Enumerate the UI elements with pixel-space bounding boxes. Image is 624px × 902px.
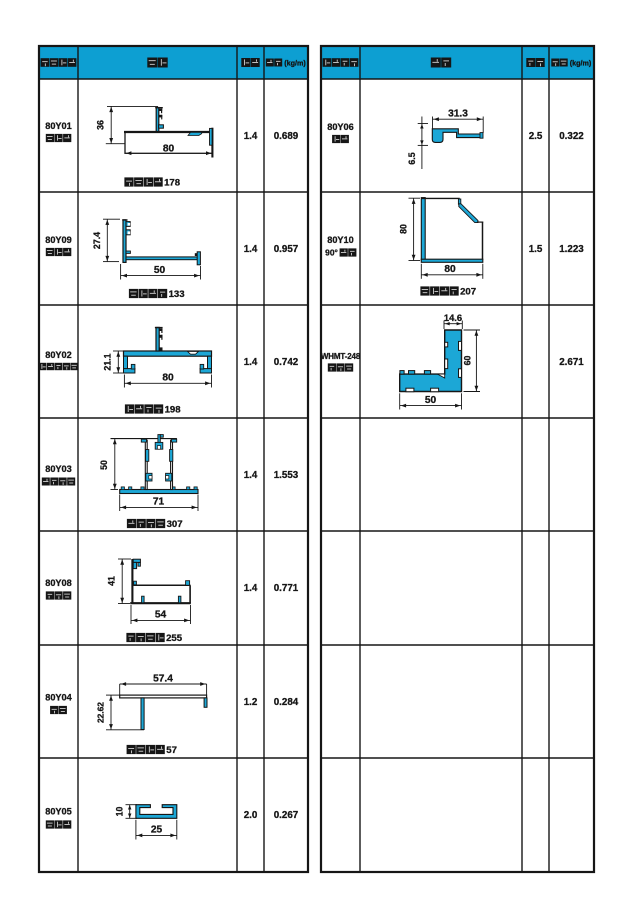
svg-text:80Y02: 80Y02 — [45, 350, 72, 360]
svg-text:1.4: 1.4 — [244, 583, 258, 594]
svg-text:31.3: 31.3 — [448, 109, 468, 120]
svg-text:57.4: 57.4 — [153, 673, 173, 684]
svg-text:57: 57 — [166, 745, 177, 756]
svg-text:80Y08: 80Y08 — [45, 578, 72, 588]
svg-text:(kg/m): (kg/m) — [284, 59, 306, 68]
svg-text:1.5: 1.5 — [529, 244, 543, 255]
svg-text:22.62: 22.62 — [95, 702, 105, 723]
svg-text:0.957: 0.957 — [274, 244, 299, 255]
svg-text:80Y03: 80Y03 — [45, 464, 72, 474]
svg-text:207: 207 — [460, 287, 476, 298]
svg-text:25: 25 — [151, 825, 163, 836]
svg-text:133: 133 — [169, 289, 185, 300]
svg-text:1.4: 1.4 — [244, 244, 258, 255]
svg-text:60: 60 — [462, 356, 472, 366]
svg-text:2.671: 2.671 — [559, 357, 584, 368]
svg-text:178: 178 — [164, 178, 181, 189]
svg-text:80Y01: 80Y01 — [45, 121, 72, 131]
svg-text:80Y10: 80Y10 — [327, 235, 354, 245]
svg-text:1.4: 1.4 — [244, 470, 258, 481]
svg-text:307: 307 — [167, 519, 183, 530]
svg-text:14.6: 14.6 — [444, 312, 462, 323]
svg-text:50: 50 — [154, 265, 166, 276]
svg-text:0.742: 0.742 — [274, 357, 299, 368]
svg-text:80: 80 — [163, 144, 175, 155]
svg-text:1.4: 1.4 — [244, 131, 258, 142]
svg-text:80: 80 — [444, 264, 456, 275]
svg-text:54: 54 — [155, 610, 167, 621]
svg-text:0.689: 0.689 — [274, 131, 299, 142]
svg-text:80: 80 — [162, 373, 174, 384]
svg-text:36: 36 — [96, 120, 106, 130]
svg-text:21.1: 21.1 — [102, 353, 112, 370]
svg-text:0.322: 0.322 — [559, 131, 584, 142]
svg-text:(kg/m): (kg/m) — [570, 59, 592, 68]
svg-text:2.0: 2.0 — [244, 810, 258, 821]
svg-text:27.4: 27.4 — [92, 232, 102, 249]
svg-text:1.553: 1.553 — [274, 470, 299, 481]
svg-text:41: 41 — [107, 576, 117, 586]
svg-text:1.4: 1.4 — [244, 357, 258, 368]
svg-text:80Y06: 80Y06 — [327, 122, 354, 132]
svg-text:90°: 90° — [325, 248, 338, 258]
svg-text:10: 10 — [114, 807, 124, 817]
svg-text:71: 71 — [153, 497, 165, 508]
svg-text:6.5: 6.5 — [407, 152, 417, 164]
svg-text:1.223: 1.223 — [559, 244, 584, 255]
svg-text:80Y05: 80Y05 — [45, 807, 72, 817]
svg-text:80Y09: 80Y09 — [45, 235, 72, 245]
svg-text:2.5: 2.5 — [529, 131, 543, 142]
svg-text:80Y04: 80Y04 — [45, 693, 72, 703]
svg-text:198: 198 — [165, 405, 182, 416]
svg-text:WHMT-248: WHMT-248 — [321, 352, 361, 361]
svg-text:50: 50 — [99, 460, 109, 470]
svg-text:0.771: 0.771 — [274, 583, 299, 594]
svg-text:80: 80 — [398, 224, 408, 234]
svg-text:0.267: 0.267 — [274, 810, 299, 821]
svg-text:255: 255 — [166, 633, 183, 644]
svg-text:50: 50 — [425, 395, 437, 406]
svg-text:1.2: 1.2 — [244, 697, 258, 708]
svg-text:0.284: 0.284 — [274, 697, 299, 708]
